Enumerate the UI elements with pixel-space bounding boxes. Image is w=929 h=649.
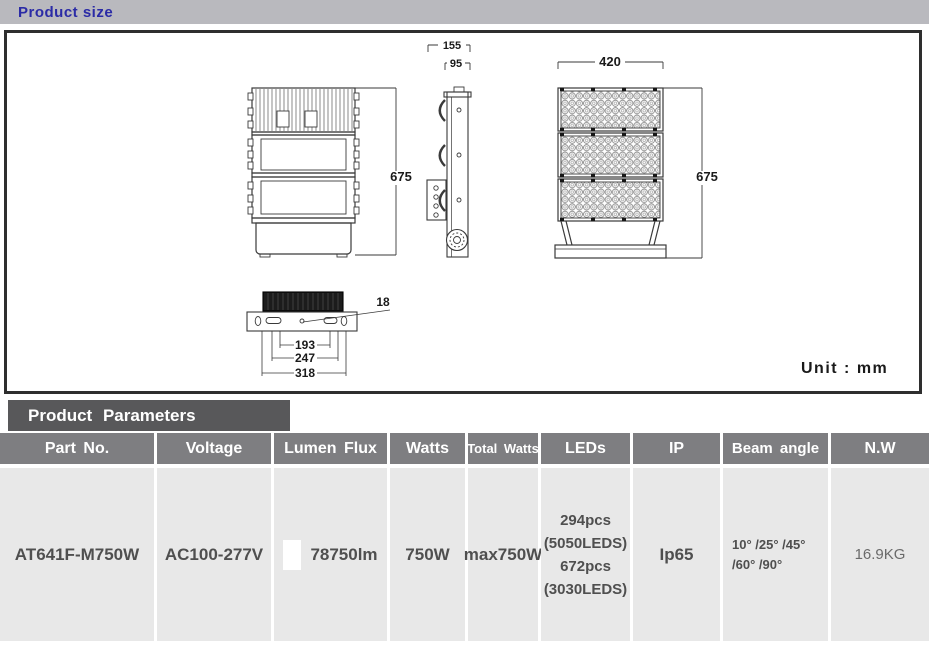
cell-net-weight: 16.9KG <box>831 468 929 645</box>
unit-label: Unit : mm <box>801 360 888 377</box>
cell-voltage: AC100-277V <box>157 468 274 645</box>
cell-total-watts: max750W <box>468 468 541 645</box>
product-size-title: Product size <box>0 4 113 21</box>
column-header-lumen-flux: Lumen Flux <box>274 433 390 468</box>
product-size-header-bar: Product size <box>0 0 929 24</box>
cell-lumen-flux: 78750lm <box>274 468 390 645</box>
column-header-nw: N.W <box>831 433 929 468</box>
dim-front-width: 420 <box>599 54 621 69</box>
parameters-table: Part No. Voltage Lumen Flux Watts Total … <box>0 433 929 645</box>
dim-front-height: 675 <box>696 169 718 184</box>
cell-ip: Ip65 <box>633 468 723 645</box>
dim-mount-span-outer: 318 <box>295 366 315 380</box>
technical-drawing: 675 <box>7 33 919 391</box>
cell-leds: 294pcs (5050LEDS) 672pcs (3030LEDS) <box>541 468 633 645</box>
column-header-voltage: Voltage <box>157 433 274 468</box>
cell-part-no: AT641F-M750W <box>0 468 157 645</box>
product-parameters-title: Product Parameters <box>8 400 290 431</box>
column-header-watts: Watts <box>390 433 468 468</box>
dim-side-total-depth: 155 <box>443 40 461 52</box>
dim-mount-span-inner: 193 <box>295 338 315 352</box>
top-view-drawing <box>247 292 390 376</box>
product-size-drawing-panel: 675 <box>4 30 922 394</box>
column-header-leds: LEDs <box>541 433 633 468</box>
front-view-drawing <box>555 62 702 258</box>
column-header-beam-angle: Beam angle <box>723 433 831 468</box>
dim-back-height: 675 <box>390 169 412 184</box>
dim-mount-span-mid: 247 <box>295 351 315 365</box>
side-view-drawing <box>427 45 471 257</box>
cell-watts: 750W <box>390 468 468 645</box>
column-header-total-watts: Total Watts <box>468 433 541 468</box>
lumen-flux-value: 78750lm <box>310 545 377 565</box>
cell-beam-angle: 10° /25° /45° /60° /90° <box>723 468 831 645</box>
back-view-drawing <box>248 88 396 257</box>
column-header-part-no: Part No. <box>0 433 157 468</box>
white-swatch <box>283 540 301 570</box>
column-header-ip: IP <box>633 433 723 468</box>
dim-mount-hole: 18 <box>376 295 390 309</box>
dim-side-body-depth: 95 <box>450 58 462 70</box>
